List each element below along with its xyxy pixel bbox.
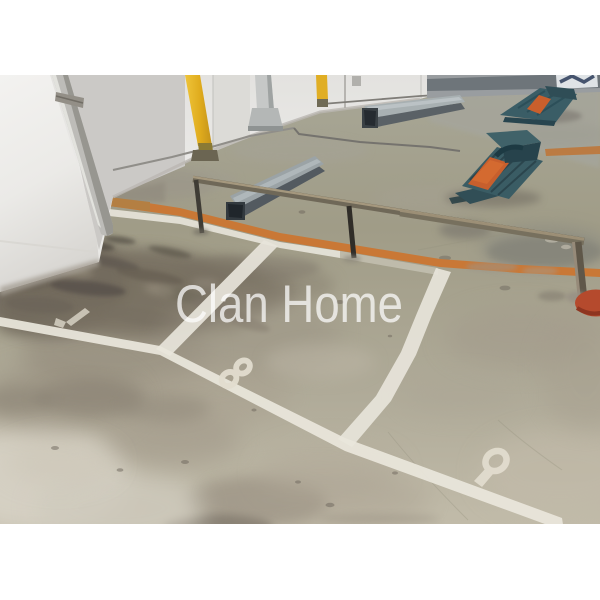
svg-text:Clan Home: Clan Home: [175, 275, 403, 334]
